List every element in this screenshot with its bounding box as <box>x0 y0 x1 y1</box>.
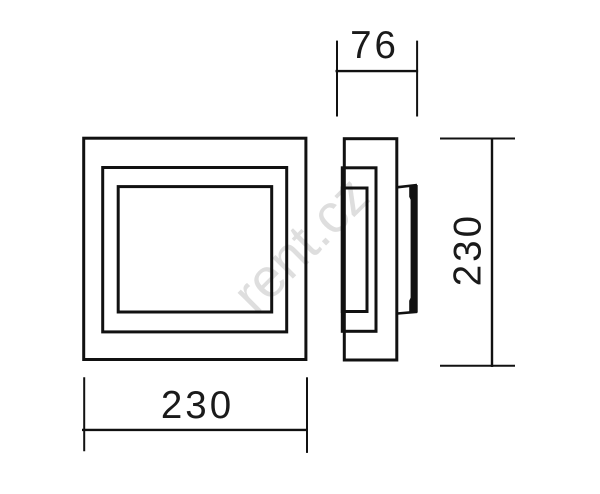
svg-text:230: 230 <box>161 384 234 427</box>
svg-text:230: 230 <box>447 213 490 286</box>
svg-text:76: 76 <box>350 24 399 67</box>
